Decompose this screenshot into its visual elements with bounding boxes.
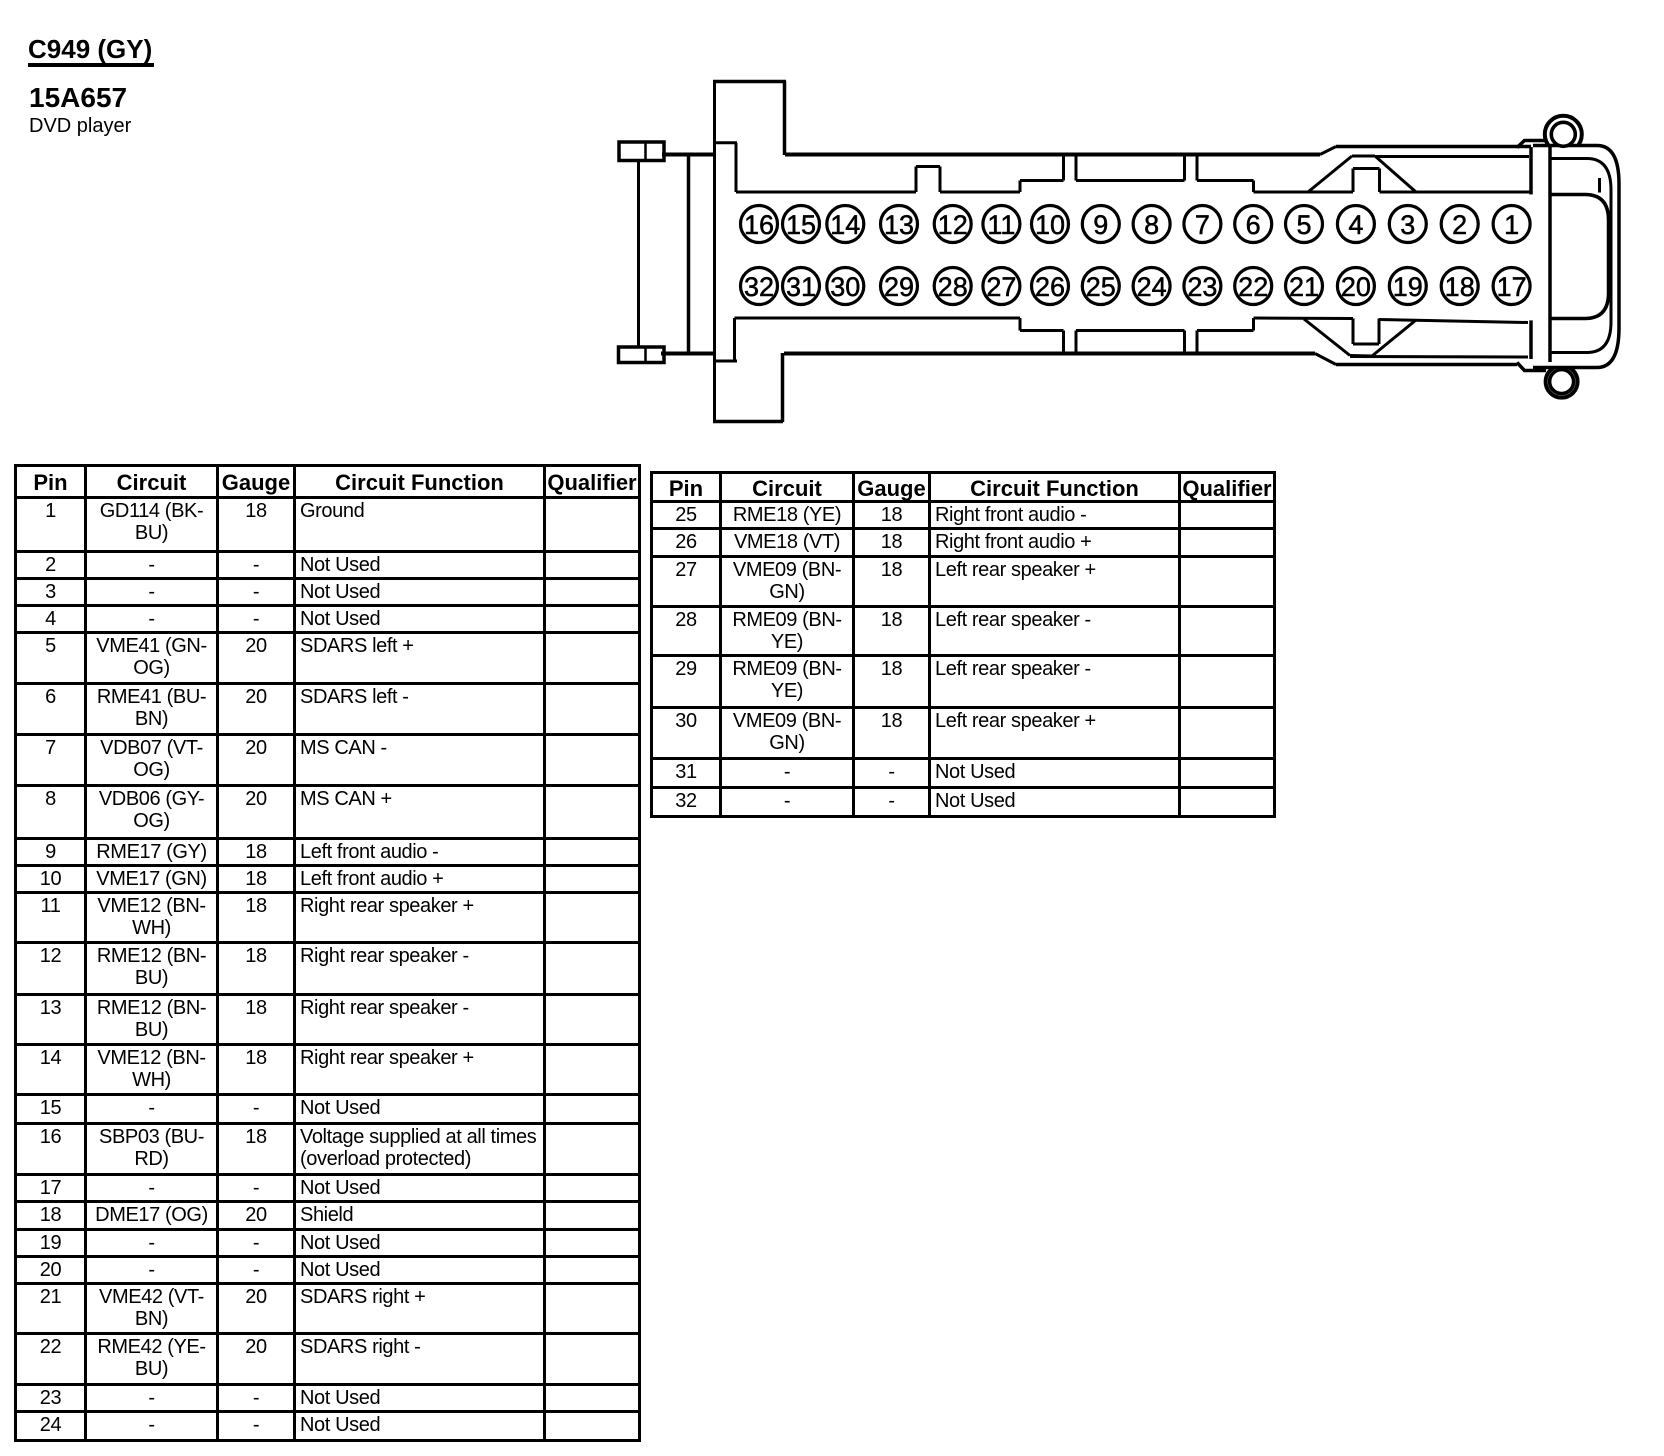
svg-text:22: 22 <box>1238 272 1268 302</box>
svg-text:26: 26 <box>1035 272 1065 302</box>
svg-text:29: 29 <box>884 272 914 302</box>
svg-text:21: 21 <box>1289 272 1319 302</box>
svg-text:25: 25 <box>1086 272 1116 302</box>
svg-text:10: 10 <box>1035 210 1065 240</box>
svg-text:19: 19 <box>1393 272 1423 302</box>
svg-text:7: 7 <box>1195 210 1210 240</box>
svg-text:23: 23 <box>1187 272 1217 302</box>
svg-text:32: 32 <box>744 272 774 302</box>
svg-text:8: 8 <box>1144 210 1159 240</box>
svg-text:30: 30 <box>830 272 860 302</box>
svg-text:27: 27 <box>986 272 1016 302</box>
svg-text:17: 17 <box>1497 272 1527 302</box>
svg-text:9: 9 <box>1093 210 1108 240</box>
svg-text:15: 15 <box>786 210 816 240</box>
svg-text:4: 4 <box>1348 210 1363 240</box>
svg-text:3: 3 <box>1400 210 1415 240</box>
svg-text:12: 12 <box>938 210 968 240</box>
svg-text:14: 14 <box>830 210 860 240</box>
svg-text:5: 5 <box>1296 210 1311 240</box>
svg-text:13: 13 <box>884 210 914 240</box>
svg-text:1: 1 <box>1504 210 1519 240</box>
svg-text:24: 24 <box>1137 272 1167 302</box>
svg-text:16: 16 <box>744 210 774 240</box>
svg-text:2: 2 <box>1452 210 1467 240</box>
svg-text:31: 31 <box>786 272 816 302</box>
svg-text:28: 28 <box>938 272 968 302</box>
svg-text:18: 18 <box>1445 272 1475 302</box>
svg-text:20: 20 <box>1341 272 1371 302</box>
svg-text:6: 6 <box>1246 210 1261 240</box>
svg-text:11: 11 <box>987 210 1015 240</box>
